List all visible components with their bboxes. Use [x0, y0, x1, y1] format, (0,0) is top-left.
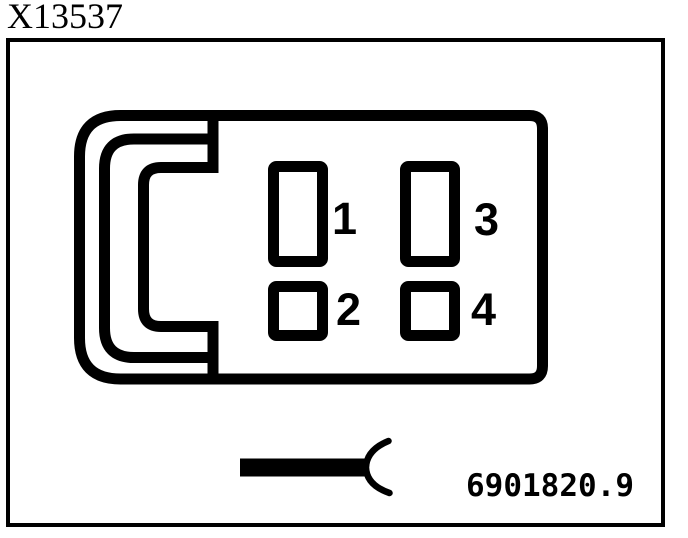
pin-4-cavity — [406, 287, 455, 336]
pin-4-label: 4 — [471, 284, 496, 335]
connector-drawing: 1 2 3 4 — [0, 0, 688, 538]
pin-2-label: 2 — [336, 284, 361, 335]
diagram-page: X13537 1 2 3 4 6901820.9 — [0, 0, 688, 538]
drawing-part-number: 6901820.9 — [462, 471, 634, 502]
wire-socket-fork-icon — [366, 441, 390, 493]
latch-bracket — [144, 112, 214, 382]
pin-1-label: 1 — [332, 193, 357, 244]
wire-symbol — [240, 441, 390, 493]
pin-2-cavity — [274, 287, 323, 336]
pin-3-label: 3 — [474, 194, 499, 245]
pin-1-cavity — [274, 167, 323, 262]
pin-3-cavity — [406, 167, 455, 262]
